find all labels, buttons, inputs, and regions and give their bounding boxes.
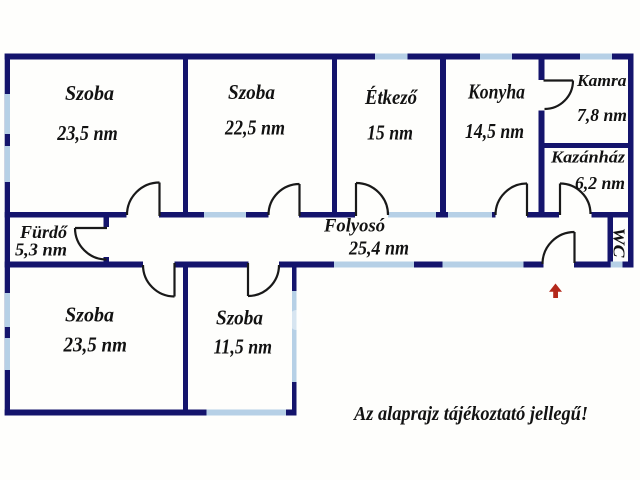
svg-text:5,3 nm: 5,3 nm <box>15 240 67 260</box>
svg-text:22,5 nm: 22,5 nm <box>224 116 285 140</box>
svg-text:25,4 nm: 25,4 nm <box>348 238 409 260</box>
svg-text:Étkező: Étkező <box>364 85 418 109</box>
svg-text:6,2 nm: 6,2 nm <box>575 173 625 193</box>
svg-text:Konyha: Konyha <box>467 80 525 104</box>
svg-text:Az alaprajz tájékoztató jelleg: Az alaprajz tájékoztató jellegű! <box>352 403 588 425</box>
svg-text:Szoba: Szoba <box>65 81 114 105</box>
svg-text:Szoba: Szoba <box>65 303 114 327</box>
svg-text:15 nm: 15 nm <box>367 121 413 145</box>
svg-text:WC: WC <box>610 228 629 259</box>
svg-text:Szoba: Szoba <box>228 80 275 104</box>
svg-text:11,5 nm: 11,5 nm <box>214 335 273 359</box>
svg-text:Kazánház: Kazánház <box>550 148 625 167</box>
svg-text:Szoba: Szoba <box>216 306 263 330</box>
svg-text:14,5 nm: 14,5 nm <box>465 119 524 143</box>
svg-text:7,8 nm: 7,8 nm <box>577 105 627 125</box>
svg-text:23,5 nm: 23,5 nm <box>63 333 127 357</box>
svg-text:Folyosó: Folyosó <box>323 216 385 237</box>
svg-text:23,5 nm: 23,5 nm <box>56 121 117 145</box>
svg-text:Kamra: Kamra <box>576 71 627 90</box>
